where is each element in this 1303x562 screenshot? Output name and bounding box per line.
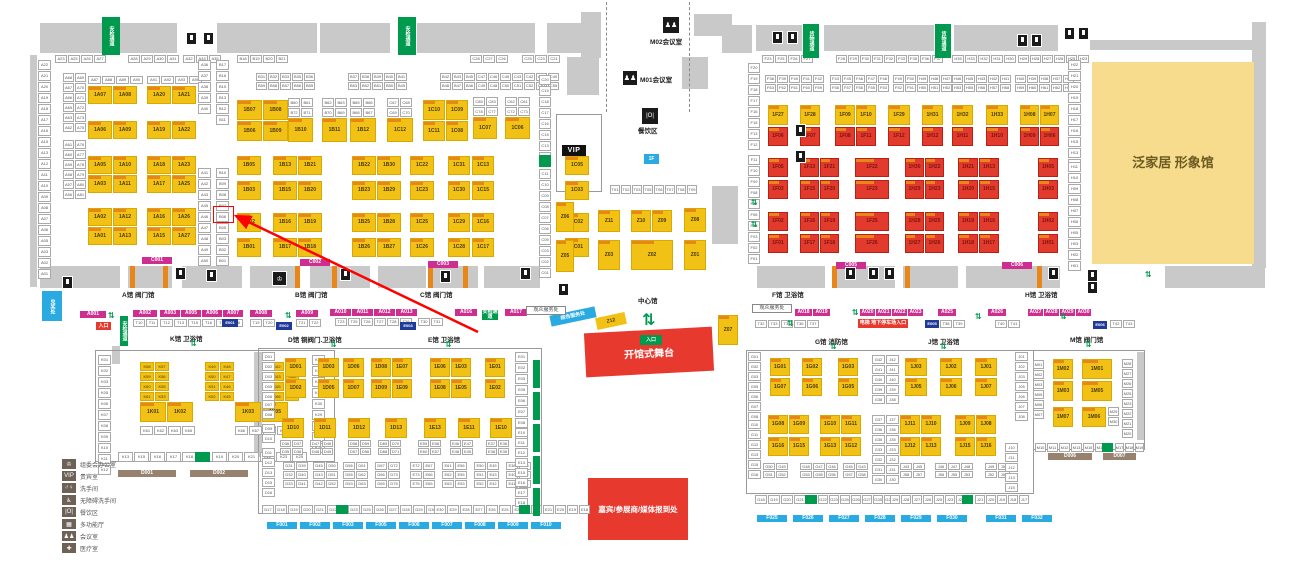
booth-grid: 1B131B211B151B20 bbox=[273, 156, 322, 200]
booth-1K01: 1K01 bbox=[140, 402, 166, 422]
booth-1F18: 1F18 bbox=[820, 234, 839, 253]
booth-grid: E01E02E03E05E06E07E08E09 bbox=[515, 352, 528, 439]
booth-G43: G43 bbox=[856, 463, 868, 470]
booth-B46: B46 bbox=[464, 82, 475, 90]
aisle-marker-strip bbox=[295, 266, 300, 288]
booth-grid: 1H32 bbox=[952, 105, 973, 125]
booth-1H18: 1H18 bbox=[958, 234, 978, 253]
booth-A40: A40 bbox=[198, 104, 211, 114]
escalator-icon: ⇅ bbox=[751, 199, 758, 207]
booth-1C30: 1C30 bbox=[448, 181, 470, 200]
booth-grid: G42J42G41J41G40J40G39J39G38J38 bbox=[872, 355, 899, 404]
booth-E21: E21 bbox=[543, 505, 554, 514]
booth-A63: A63 bbox=[63, 113, 74, 122]
booth-B02: B02 bbox=[216, 245, 229, 255]
booth-E18: E18 bbox=[579, 505, 590, 514]
booth-1B13: 1B13 bbox=[273, 156, 297, 175]
booth-B63: B63 bbox=[335, 98, 347, 107]
booth-E15: E15 bbox=[515, 468, 528, 477]
wall-segment bbox=[40, 266, 120, 288]
legend-item: ♿无障碍洗手间 bbox=[62, 495, 116, 505]
restroom-icon bbox=[340, 268, 351, 281]
booth-grid: E46E47E48E45 bbox=[450, 440, 473, 455]
booth-H33: H33 bbox=[965, 55, 977, 63]
booth-grid: 1C12 bbox=[387, 118, 413, 142]
booth-J07: J07 bbox=[1015, 402, 1028, 411]
booth-K56: K56 bbox=[155, 372, 169, 381]
booth-J10: J10 bbox=[1005, 443, 1018, 452]
booth-D26: D26 bbox=[374, 505, 386, 514]
booth-E06: E06 bbox=[515, 396, 528, 406]
restroom-icon bbox=[558, 283, 569, 296]
booth-F06: F06 bbox=[748, 210, 760, 220]
booth-T07: T07 bbox=[665, 185, 675, 194]
booth-1G12: 1G12 bbox=[841, 437, 861, 456]
booth-grid: 1H091H06 bbox=[1020, 127, 1059, 146]
booth-B12: B12 bbox=[216, 104, 229, 114]
booth-F17: F17 bbox=[748, 96, 760, 106]
booth-E52: E52 bbox=[474, 480, 486, 488]
booth-grid: 1H10 bbox=[986, 127, 1008, 146]
booth-H13: H13 bbox=[1068, 148, 1081, 158]
booth-F63: F63 bbox=[765, 84, 776, 92]
escalator-icon: ⇅ bbox=[751, 221, 758, 229]
booth-1B05: 1B05 bbox=[237, 156, 261, 175]
booth-M25: M25 bbox=[1122, 389, 1133, 398]
booth-grid: A23A25A26A27 bbox=[55, 55, 106, 63]
booth-C70: C70 bbox=[400, 108, 412, 117]
security-channel-cell bbox=[336, 505, 348, 514]
booth-1C12: 1C12 bbox=[387, 118, 413, 142]
booth-1C25: 1C25 bbox=[410, 213, 434, 232]
booth-A90: A90 bbox=[130, 76, 143, 84]
booth-T36: T36 bbox=[794, 320, 806, 328]
booth-K57: K57 bbox=[155, 362, 169, 371]
booth-E25: E25 bbox=[499, 505, 511, 514]
booth-F38: F38 bbox=[765, 75, 776, 83]
escalator-icon: ⇅ bbox=[852, 309, 859, 317]
booth-H19: H19 bbox=[1068, 93, 1081, 103]
booth-1G10: 1G10 bbox=[820, 415, 840, 434]
booth-grid: T21T22 bbox=[296, 319, 321, 327]
booth-D35: D35 bbox=[280, 448, 291, 455]
booth-A58: A58 bbox=[63, 170, 74, 179]
booth-1H11: 1H11 bbox=[952, 127, 973, 146]
booth-A08: A08 bbox=[38, 203, 51, 213]
booth-grid: D67D72D66D73D65D75 bbox=[375, 462, 400, 488]
booth-grid: 1C221C23 bbox=[410, 156, 434, 200]
booth-F01: F01 bbox=[748, 254, 760, 264]
booth-G20: G20 bbox=[781, 495, 793, 504]
booth-grid: 1J111J101J121J13 bbox=[900, 415, 941, 456]
legend-item: ▦多功能厅 bbox=[62, 519, 104, 529]
booth-A45: A45 bbox=[198, 201, 211, 211]
booth-G37: G37 bbox=[872, 415, 885, 424]
booth-G26: G26 bbox=[851, 495, 861, 504]
sign-E003: E003 bbox=[400, 322, 416, 330]
booth-G25: G25 bbox=[840, 495, 850, 504]
hall-label: H馆 卫浴馆 bbox=[1025, 289, 1058, 299]
booth-grid: A91A92A93A95 bbox=[147, 76, 202, 84]
booth-1D07: 1D07 bbox=[343, 379, 364, 398]
booth-G57: G57 bbox=[843, 471, 855, 478]
booth-E27: E27 bbox=[473, 505, 485, 514]
booth-A48: A48 bbox=[198, 234, 211, 244]
booth-B05: B05 bbox=[216, 223, 229, 233]
booth-J26: J26 bbox=[923, 495, 933, 504]
booth-grid: 1B10 bbox=[288, 118, 313, 142]
booth-G50: G50 bbox=[763, 463, 775, 470]
sign-E001: E001 bbox=[222, 319, 238, 327]
legend-label: 贵宾室 bbox=[80, 472, 98, 481]
sign-安检通道: 安检通道 bbox=[102, 17, 120, 55]
booth-K02: K02 bbox=[98, 366, 111, 376]
booth-H29: H29 bbox=[1018, 55, 1029, 63]
wall-segment bbox=[547, 23, 581, 53]
booth-G49: G49 bbox=[776, 463, 788, 470]
booth-1F05: 1F05 bbox=[768, 158, 788, 177]
booth-G40: G40 bbox=[872, 375, 885, 384]
security-channel-cell bbox=[533, 360, 540, 388]
booth-F42: F42 bbox=[813, 75, 824, 83]
booth-J53: J53 bbox=[961, 471, 973, 478]
booth-1A16: 1A16 bbox=[147, 208, 171, 226]
booth-T38: T38 bbox=[940, 320, 952, 328]
booth-grid: 1B021B01 bbox=[237, 213, 261, 257]
booth-A92: A92 bbox=[161, 76, 174, 84]
booth-J52: J52 bbox=[985, 471, 997, 478]
booth-grid: 1G031G05 bbox=[838, 358, 858, 396]
booth-grid: 1H31 bbox=[922, 105, 943, 125]
booth-grid: 1D10 bbox=[282, 418, 304, 438]
sign-A017: A017 bbox=[505, 309, 527, 316]
booth-D39: D39 bbox=[296, 462, 308, 470]
booth-F28: F28 bbox=[836, 55, 847, 63]
booth-grid: D07D08 bbox=[262, 400, 275, 419]
booth-J37: J37 bbox=[886, 415, 899, 424]
booth-grid: A68A69A67A70A66A71A65A72A63A73A62A75 bbox=[63, 73, 86, 132]
sign-A030: A030 bbox=[1076, 309, 1091, 316]
booth-1D01: 1D01 bbox=[285, 358, 306, 377]
legend-label: 会议室 bbox=[80, 532, 98, 541]
booth-C69: C69 bbox=[387, 108, 399, 117]
booth-H03: H03 bbox=[1068, 239, 1081, 249]
sign-F028: F028 bbox=[865, 515, 895, 522]
sign-A001: A001 bbox=[80, 311, 106, 318]
booth-G46: G46 bbox=[826, 463, 838, 470]
booth-G47: G47 bbox=[813, 463, 825, 470]
booth-1E02: 1E02 bbox=[485, 379, 505, 398]
booth-B48: B48 bbox=[440, 82, 451, 90]
booth-J46: J46 bbox=[935, 463, 947, 470]
booth-D58: D58 bbox=[348, 440, 359, 447]
booth-1F25: 1F25 bbox=[855, 212, 889, 231]
booth-T33: T33 bbox=[768, 320, 780, 328]
sign-兑奖处: 兑奖处 bbox=[42, 291, 62, 321]
booth-grid: H11H10H09H08H07H06H05H03H02H01 bbox=[1068, 162, 1081, 271]
booth-grid: D01D02D03D05D06 bbox=[262, 352, 275, 401]
booth-H43: H43 bbox=[976, 75, 987, 83]
booth-B17: B17 bbox=[216, 60, 229, 70]
booth-grid: B62B63B70B69 bbox=[322, 98, 347, 117]
booth-M07: M07 bbox=[1033, 410, 1044, 419]
booth-G28: G28 bbox=[873, 495, 883, 504]
booth-A22: A22 bbox=[38, 60, 51, 70]
exhibition-floor-plan[interactable]: 泛家居 形象馆开馆式舞台嘉宾/参展商/媒体报到处1A071A081A201A21… bbox=[0, 0, 1303, 562]
booth-E62: E62 bbox=[442, 471, 454, 479]
booth-F08: F08 bbox=[748, 188, 760, 198]
booth-C18: C18 bbox=[539, 97, 551, 107]
booth-1C07: 1C07 bbox=[473, 117, 497, 139]
sign-F007: F007 bbox=[432, 522, 462, 529]
sign-F026: F026 bbox=[793, 515, 823, 522]
booth-J55: J55 bbox=[948, 471, 960, 478]
booth-grid: D17D18D19D20D21D22 bbox=[262, 505, 339, 514]
booth-H47: H47 bbox=[941, 75, 952, 83]
booth-J25: J25 bbox=[934, 495, 944, 504]
booth-1D09: 1D09 bbox=[371, 379, 391, 398]
booth-D61: D61 bbox=[356, 462, 368, 470]
booth-T01: T01 bbox=[610, 185, 620, 194]
booth-C48: C48 bbox=[488, 82, 499, 90]
booth-J01: J01 bbox=[1015, 352, 1028, 361]
aisle-marker-strip bbox=[905, 266, 910, 288]
booth-1A19: 1A19 bbox=[147, 121, 171, 139]
booth-J36: J36 bbox=[886, 425, 899, 434]
booth-1H17: 1H17 bbox=[979, 234, 999, 253]
restroom-icon bbox=[787, 31, 798, 44]
booth-F50: F50 bbox=[905, 75, 916, 83]
wall-segment bbox=[757, 266, 825, 288]
booth-D13: D13 bbox=[262, 468, 275, 477]
booth-H30: H30 bbox=[1004, 55, 1016, 63]
booth-E48: E48 bbox=[450, 448, 461, 455]
booth-1D03: 1D03 bbox=[318, 358, 339, 377]
booth-F57: F57 bbox=[842, 84, 853, 92]
booth-grid: 1C07 bbox=[473, 117, 497, 139]
booth-grid: 1M011M05 bbox=[1082, 359, 1112, 401]
booth-D47: D47 bbox=[310, 440, 321, 447]
booth-A93: A93 bbox=[175, 76, 188, 84]
booth-1A12: 1A12 bbox=[113, 208, 137, 226]
booth-A18: A18 bbox=[38, 104, 51, 114]
booth-H01: H01 bbox=[1068, 261, 1081, 271]
booth-1B01: 1B01 bbox=[237, 238, 261, 257]
booth-C05: C05 bbox=[539, 235, 551, 245]
escalator-icon: ⇅ bbox=[1060, 313, 1067, 321]
restroom-icon bbox=[520, 267, 531, 280]
booth-grid: K49K48K50K47K51K46K52K45 bbox=[205, 362, 234, 401]
booth-C85: C85 bbox=[473, 97, 485, 106]
booth-M02: M02 bbox=[1033, 370, 1044, 379]
booth-grid: B18B19B20B21 bbox=[237, 55, 288, 63]
booth-F32: F32 bbox=[884, 55, 895, 63]
hall-label: M01会议室 bbox=[640, 74, 672, 84]
booth-B69: B69 bbox=[335, 108, 347, 117]
booth-grid: 1A051A101A031A11 bbox=[88, 156, 137, 193]
booth-C47: C47 bbox=[476, 73, 487, 81]
booth-C21: C21 bbox=[548, 55, 560, 63]
booth-D55: D55 bbox=[343, 471, 355, 479]
booth-1J13: 1J13 bbox=[921, 437, 941, 456]
booth-1H16: 1H16 bbox=[979, 212, 999, 231]
booth-1H15: 1H15 bbox=[979, 180, 999, 199]
booth-1B30: 1B30 bbox=[377, 156, 401, 175]
booth-1K03: 1K03 bbox=[235, 402, 261, 422]
booth-E65: E65 bbox=[423, 480, 435, 488]
booth-A56: A56 bbox=[63, 190, 74, 199]
booth-T26: T26 bbox=[361, 318, 373, 326]
booth-A23: A23 bbox=[55, 55, 67, 63]
wall-segment bbox=[378, 266, 426, 288]
booth-E03: E03 bbox=[515, 374, 528, 384]
booth-A30: A30 bbox=[154, 55, 166, 63]
booth-1C15: 1C15 bbox=[472, 181, 494, 200]
booth-grid: G37J37G36J36G35J35G33J33G32J32G31J31G30J… bbox=[872, 415, 899, 484]
booth-C27: C27 bbox=[483, 55, 495, 63]
booth-grid: K61K62K63K65 bbox=[140, 426, 195, 435]
booth-E01: E01 bbox=[515, 352, 528, 362]
booth-D37: D37 bbox=[292, 440, 303, 447]
sign-A008: A008 bbox=[250, 310, 272, 317]
booth-J12: J12 bbox=[1005, 463, 1018, 472]
booth-1F11: 1F11 bbox=[856, 127, 876, 146]
sign-Z12: Z12 bbox=[595, 312, 627, 330]
booth-K10: K10 bbox=[98, 443, 111, 453]
booth-H57: H57 bbox=[988, 84, 999, 92]
booth-F51: F51 bbox=[905, 84, 916, 92]
booth-1J12: 1J12 bbox=[900, 437, 920, 456]
booth-1D12: 1D12 bbox=[348, 418, 370, 438]
entrance-escalator-icon: ⇅ bbox=[642, 313, 655, 329]
booth-K48: K48 bbox=[220, 362, 234, 371]
booth-grid: 1C311C30 bbox=[448, 156, 470, 200]
booth-A29: A29 bbox=[141, 55, 153, 63]
legend-label: 洗手间 bbox=[80, 484, 98, 493]
booth-A12: A12 bbox=[38, 159, 51, 169]
booth-grid: 1A201A21 bbox=[147, 86, 196, 104]
booth-D33: D33 bbox=[283, 480, 295, 488]
booth-grid: 1J011J07 bbox=[975, 358, 997, 396]
sign-A011: A011 bbox=[352, 309, 373, 316]
booth-grid: J01J02J03J05J06J07J08 bbox=[1015, 352, 1028, 421]
booth-D18: D18 bbox=[275, 505, 287, 514]
legend-item: ♟♟会议室 bbox=[62, 531, 98, 541]
booth-grid: E30E29E28E27E26E25E23 bbox=[434, 505, 524, 514]
booth-F16: F16 bbox=[748, 107, 760, 117]
booth-grid: T30T31 bbox=[418, 318, 443, 326]
booth-J27: J27 bbox=[912, 495, 922, 504]
booth-K53: K53 bbox=[155, 392, 169, 401]
booth-C06: C06 bbox=[539, 224, 551, 234]
booth-D09: D09 bbox=[262, 424, 275, 433]
booth-K15: K15 bbox=[134, 452, 149, 462]
escalator-icon: ⇅ bbox=[190, 340, 197, 348]
booth-grid: A36A37A38A39A40 bbox=[198, 60, 211, 114]
booth-grid: Z06 bbox=[556, 202, 574, 232]
booth-A62: A62 bbox=[63, 123, 74, 132]
booth-1F15: 1F15 bbox=[800, 180, 819, 199]
booth-M12: M12 bbox=[1059, 443, 1070, 452]
booth-grid: 1H191H161H181H17 bbox=[958, 212, 999, 253]
booth-1B20: 1B20 bbox=[298, 181, 322, 200]
booth-F46: F46 bbox=[854, 75, 865, 83]
booth-grid: K13K15K16K17K18 bbox=[118, 452, 197, 462]
hall-label: 中心馆 bbox=[638, 295, 658, 305]
booth-grid: T19T20 bbox=[250, 319, 275, 327]
booth-grid: 1F29 bbox=[888, 105, 910, 125]
sign-F032: F032 bbox=[1022, 515, 1052, 522]
booth-H11: H11 bbox=[1068, 162, 1081, 172]
booth-G10: G10 bbox=[748, 420, 761, 429]
booth-E46: E46 bbox=[450, 440, 461, 447]
booth-J48: J48 bbox=[961, 463, 973, 470]
booth-B49: B49 bbox=[396, 82, 407, 90]
booth-C15: C15 bbox=[539, 130, 551, 140]
security-channel-cell bbox=[519, 505, 530, 514]
booth-1D10: 1D10 bbox=[282, 418, 304, 438]
booth-grid: Z02 bbox=[631, 240, 673, 270]
booth-1J07: 1J07 bbox=[975, 378, 997, 396]
booth-grid: C62C61C72C73 bbox=[505, 97, 530, 116]
booth-grid: 1D12 bbox=[348, 418, 370, 438]
wall-segment bbox=[1165, 266, 1265, 288]
booth-H22: H22 bbox=[1068, 60, 1081, 70]
booth-T05: T05 bbox=[643, 185, 653, 194]
booth-1A26: 1A26 bbox=[172, 208, 196, 226]
booth-E53: E53 bbox=[455, 480, 467, 488]
booth-1H13: 1H13 bbox=[979, 158, 999, 177]
security-channel-cell bbox=[533, 424, 540, 452]
booth-D45: D45 bbox=[322, 448, 333, 455]
booth-B13: B13 bbox=[216, 93, 229, 103]
booth-1M01: 1M01 bbox=[1082, 359, 1112, 379]
booth-A70: A70 bbox=[75, 83, 86, 92]
booth-J21: J21 bbox=[975, 495, 985, 504]
booth-F48: F48 bbox=[878, 75, 889, 83]
booth-H20: H20 bbox=[1068, 82, 1081, 92]
booth-B10: B10 bbox=[216, 168, 229, 178]
booth-grid: C25C23C21 bbox=[522, 55, 560, 63]
booth-E13: E13 bbox=[515, 458, 528, 467]
restroom-icon bbox=[206, 269, 217, 282]
booth-Z02: Z02 bbox=[631, 240, 673, 270]
booth-grid: D69D70D68D71 bbox=[378, 440, 401, 455]
booth-J47: J47 bbox=[948, 463, 960, 470]
booth-B01: B01 bbox=[216, 256, 229, 266]
booth-H48: H48 bbox=[929, 75, 940, 83]
booth-J57: J57 bbox=[913, 471, 925, 478]
booth-H52: H52 bbox=[941, 84, 952, 92]
booth-B37: B37 bbox=[348, 73, 359, 81]
booth-grid: A28A29A30A31 bbox=[128, 55, 179, 63]
booth-1C05: 1C05 bbox=[565, 156, 589, 175]
booth-G33: G33 bbox=[872, 445, 885, 454]
booth-1D05: 1D05 bbox=[318, 379, 339, 398]
booth-E72: E72 bbox=[410, 462, 422, 470]
sign-C003: C003 bbox=[428, 261, 458, 268]
booth-C13: C13 bbox=[539, 141, 551, 151]
sign-A027: A027 bbox=[1028, 309, 1043, 316]
booth-D71: D71 bbox=[390, 448, 401, 455]
booth-1D13: 1D13 bbox=[385, 418, 407, 438]
booth-H21: H21 bbox=[1068, 71, 1081, 81]
booth-1E01: 1E01 bbox=[485, 358, 505, 377]
dashed-boundary-line bbox=[606, 2, 607, 112]
booth-F56: F56 bbox=[854, 84, 865, 92]
booth-grid: H40H39H38H37H36H59H60H61H62H63 bbox=[1015, 75, 1074, 92]
booth-A76: A76 bbox=[75, 140, 86, 149]
